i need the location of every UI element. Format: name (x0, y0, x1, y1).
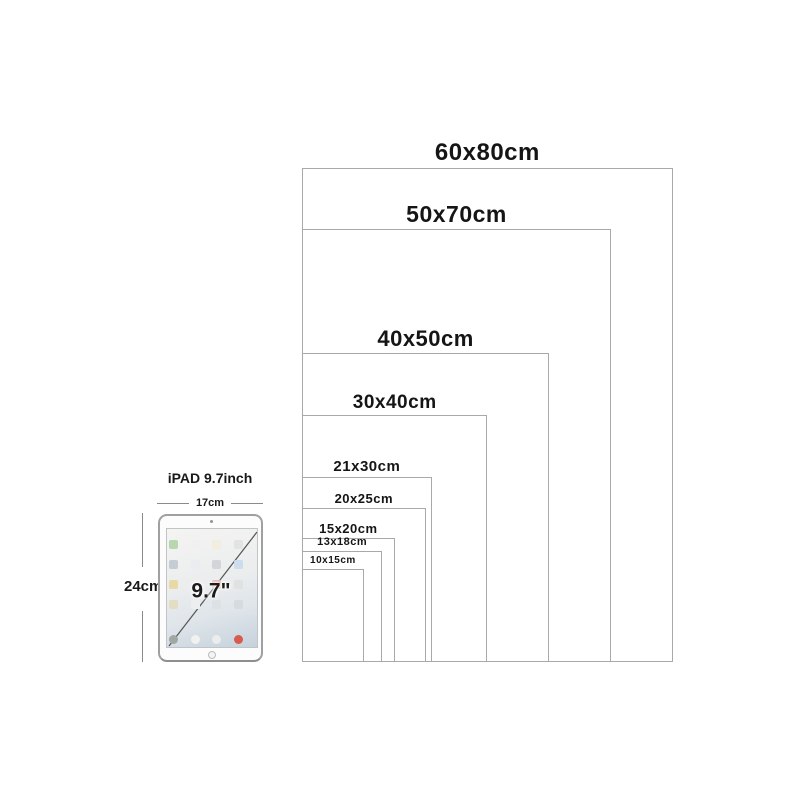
ipad-screen: 9.7" (166, 528, 258, 648)
size-label: 60x80cm (435, 141, 540, 165)
app-icon (234, 580, 243, 589)
measure-line-bottom (142, 611, 143, 662)
app-icon (191, 560, 200, 569)
app-icon (191, 540, 200, 549)
size-label: 50x70cm (406, 203, 507, 226)
ipad-width-label: 17cm (189, 498, 231, 509)
ipad-body: 9.7" (158, 514, 263, 662)
app-icon (234, 540, 243, 549)
size-label: 21x30cm (333, 459, 400, 474)
size-label: 30x40cm (353, 393, 437, 412)
size-label: 13x18cm (317, 537, 367, 548)
size-label: 10x15cm (310, 556, 356, 566)
size-comparison-diagram: 60x80cm50x70cm40x50cm30x40cm21x30cm20x25… (0, 0, 800, 800)
size-rectangle (302, 569, 364, 662)
app-icon (234, 600, 243, 609)
measure-line-top (142, 513, 143, 567)
app-icon (212, 560, 221, 569)
size-label: 20x25cm (335, 492, 393, 505)
app-icon (169, 580, 178, 589)
app-icon (169, 540, 178, 549)
ipad-height-label: 24cm (124, 579, 154, 594)
measure-line-right (231, 503, 263, 504)
ipad-width-measure: 17cm (157, 497, 263, 510)
dock-icon (169, 635, 178, 644)
app-icon (169, 560, 178, 569)
home-button (208, 651, 216, 659)
dock-icon (191, 635, 200, 644)
size-label: 40x50cm (377, 328, 473, 350)
measure-line-left (157, 503, 189, 504)
front-camera-dot (210, 520, 213, 523)
ipad-title: iPAD 9.7inch (168, 470, 253, 486)
size-label: 15x20cm (319, 522, 377, 535)
screen-diagonal-label: 9.7" (191, 581, 230, 602)
app-icon (212, 540, 221, 549)
app-icon (234, 560, 243, 569)
app-icon (169, 600, 178, 609)
